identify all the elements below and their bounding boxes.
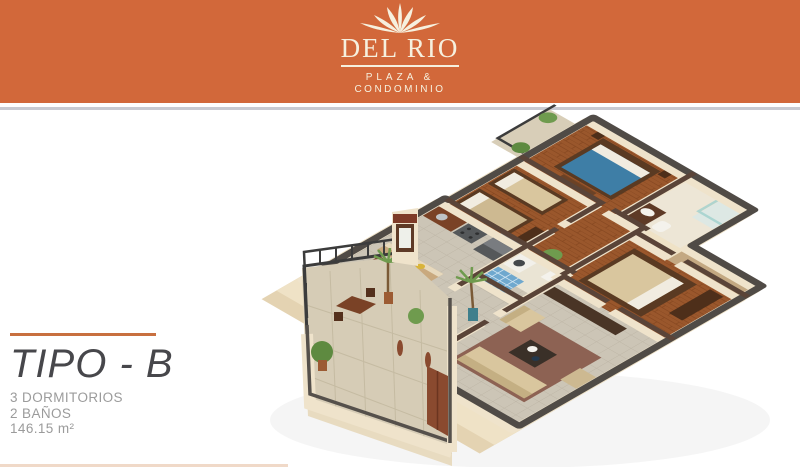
- brand-logo: DEL RIO PLAZA & CONDOMINIO: [300, 1, 500, 96]
- hallway-floor: [519, 208, 636, 275]
- brand-tagline-1: PLAZA &: [300, 72, 500, 84]
- figurine: [397, 340, 403, 356]
- hallway-plant: [536, 246, 566, 264]
- master-bed: [537, 132, 672, 210]
- bathroom2-fixtures: [475, 253, 561, 302]
- figurine: [425, 352, 431, 368]
- bedroom3-floor: [556, 238, 737, 343]
- brand-tagline-2: CONDOMINIO: [300, 84, 500, 96]
- tv-cabinet: [543, 287, 627, 335]
- bathroom2-floor: [470, 250, 565, 305]
- dining-floor: [301, 222, 531, 355]
- kitchen-appliances: [419, 200, 524, 261]
- balcony-railing: [498, 105, 585, 155]
- wall-sides: [278, 119, 800, 430]
- header-divider-line: [0, 107, 800, 110]
- bedroom3-bed: [578, 247, 723, 331]
- closet-strip-floor: [667, 250, 753, 300]
- fruit-bowl: [414, 263, 427, 271]
- palm-fountain-icon: [354, 1, 446, 35]
- terrace-table-set: [334, 288, 376, 321]
- logo-rule: [341, 65, 459, 67]
- living-room-furniture: [439, 287, 654, 411]
- ottoman: [560, 368, 596, 389]
- red-kettle: [393, 253, 408, 262]
- brand-name: DEL RIO: [300, 35, 500, 61]
- kitchen-floor: [371, 203, 519, 289]
- plan-title: TIPO - B: [10, 343, 240, 385]
- living-room-floor: [404, 281, 663, 431]
- terrace-plants: [311, 248, 424, 371]
- shower-tray: [692, 200, 745, 231]
- entry-door: [427, 366, 448, 436]
- master-balcony-floor: [491, 109, 578, 159]
- wall-caps: [285, 115, 800, 426]
- sofa: [458, 346, 547, 397]
- master-bathroom-fixtures: [625, 177, 750, 249]
- terrace-railing: [304, 238, 404, 334]
- master-bedroom-floor: [515, 122, 684, 219]
- page: DEL RIO PLAZA & CONDOMINIO: [0, 0, 800, 467]
- rug: [450, 315, 601, 402]
- spec-bedrooms: 3 DORMITORIOS: [10, 390, 240, 406]
- kids-beds: [448, 169, 585, 248]
- master-bath-floor: [622, 179, 745, 250]
- kitchen-window: [392, 208, 418, 266]
- terrace-wing: [302, 238, 452, 466]
- building-plinth: [245, 129, 799, 449]
- spec-baths: 2 BAÑOS: [10, 406, 240, 422]
- ground-shadow: [270, 372, 770, 467]
- spec-area: 146.15 m²: [10, 421, 240, 437]
- coffee-table: [508, 340, 557, 368]
- kids-bedroom-floor: [441, 162, 593, 250]
- accent-rule: [10, 333, 156, 336]
- armchair: [499, 305, 545, 332]
- indoor-palm: [456, 267, 487, 321]
- balcony-plants: [495, 110, 573, 155]
- dining-table: [315, 261, 406, 313]
- bar-counter: [365, 243, 443, 288]
- plan-info-block: TIPO - B 3 DORMITORIOS 2 BAÑOS 146.15 m²: [10, 333, 240, 437]
